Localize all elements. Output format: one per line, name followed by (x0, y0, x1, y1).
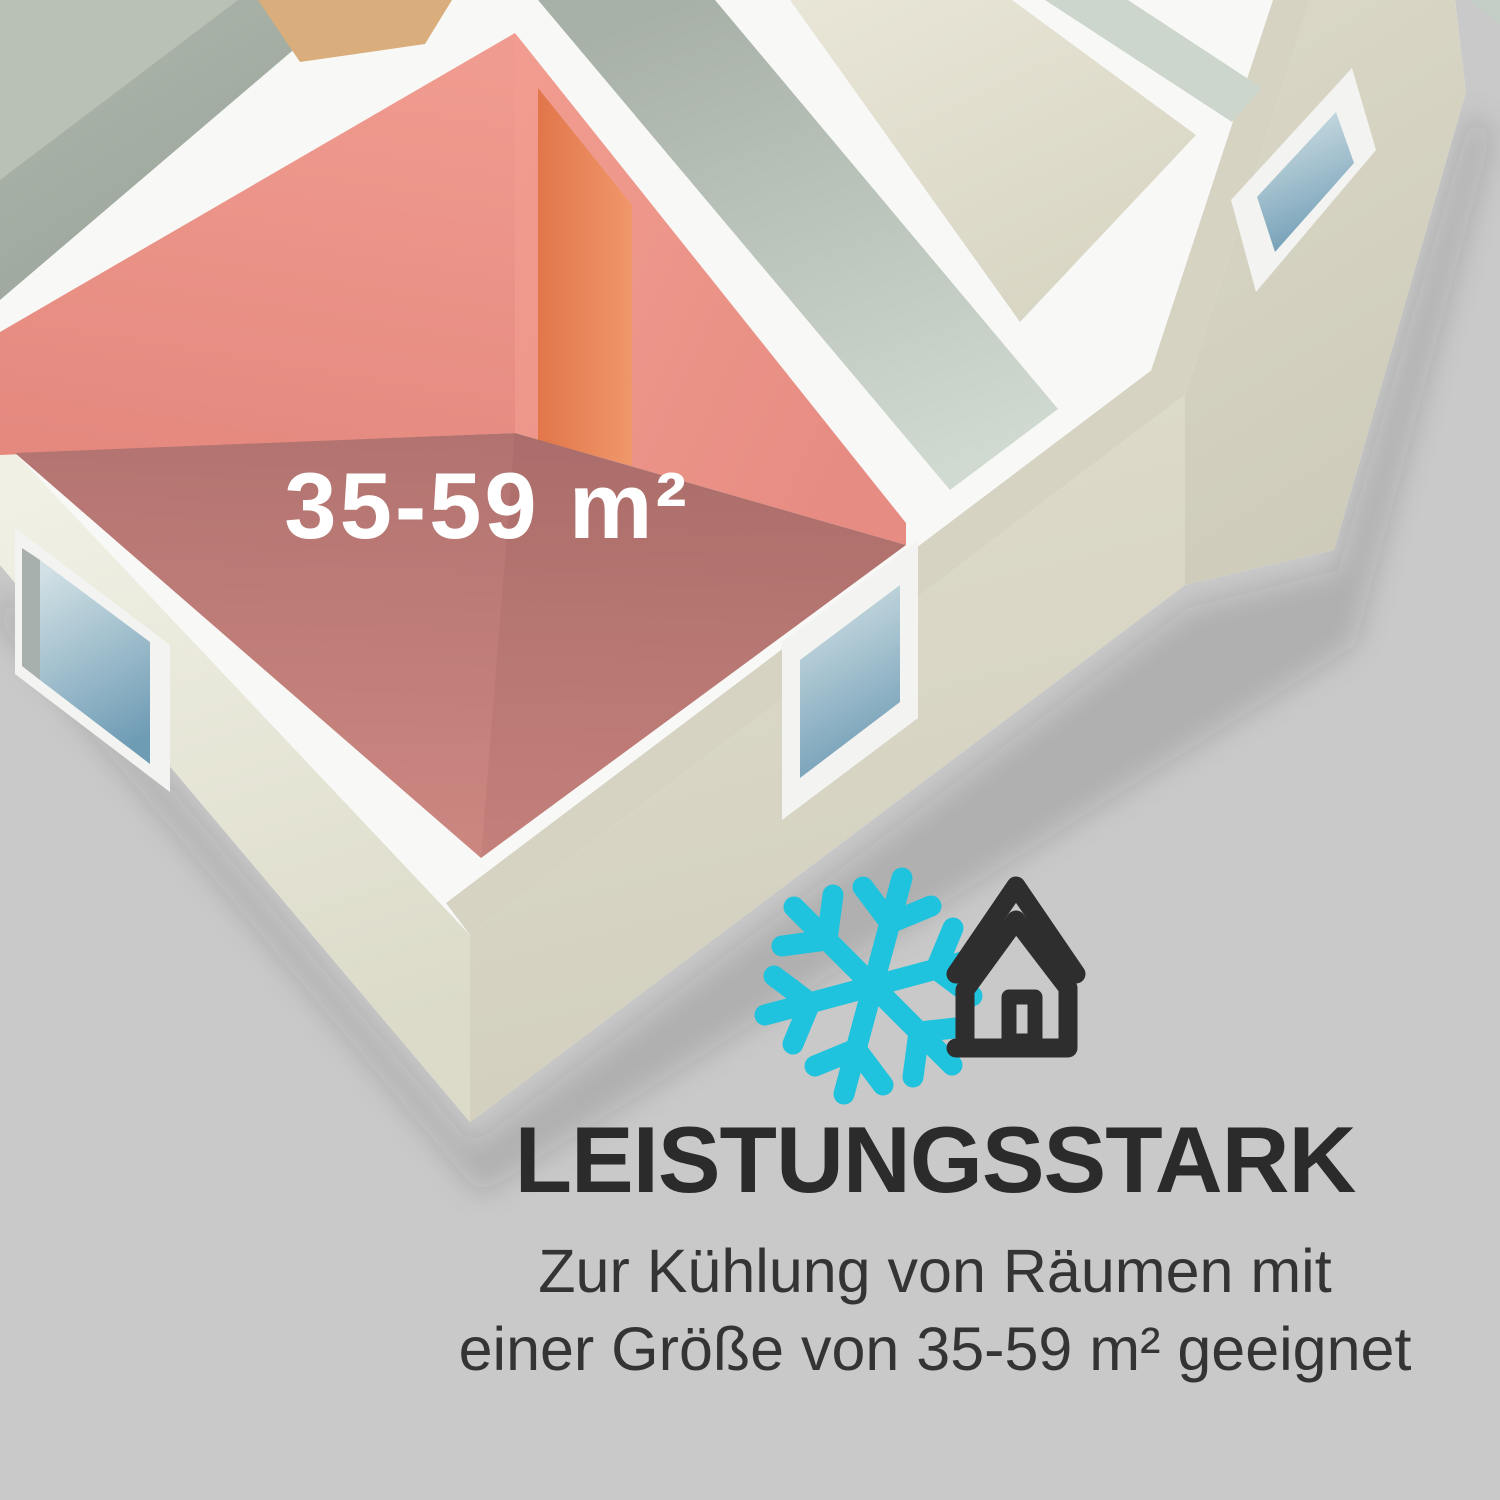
floorplan-illustration (0, 0, 1500, 1500)
window-left-jamb (22, 548, 40, 680)
infographic-canvas: 35-59 m² LEISTUNGSSTARK Zur Kühlung von … (0, 0, 1500, 1500)
room-size-label: 35-59 m² (284, 452, 689, 560)
